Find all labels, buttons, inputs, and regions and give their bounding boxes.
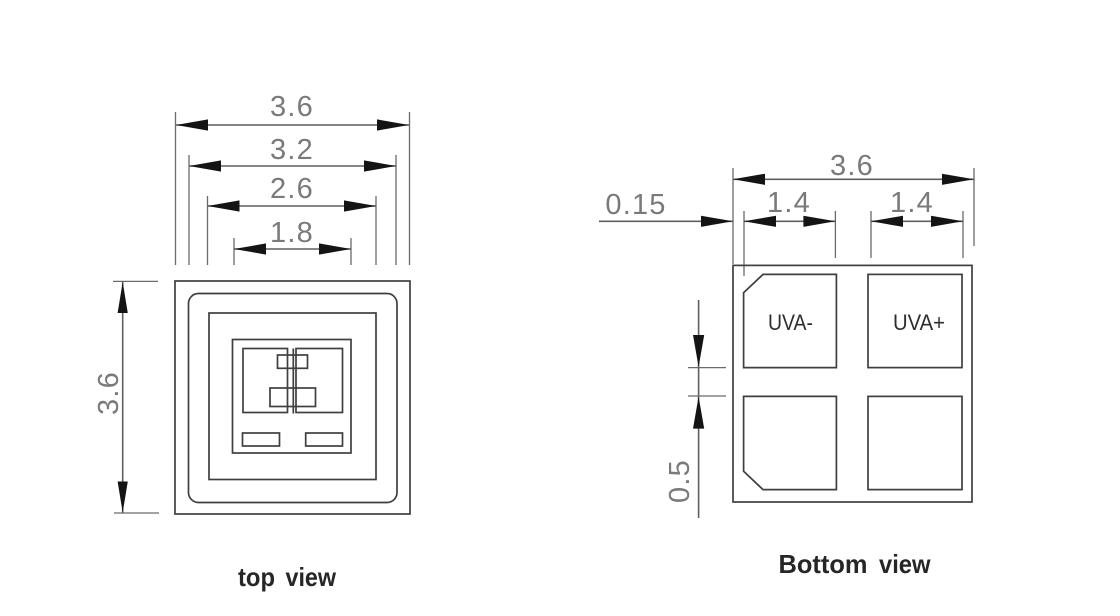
svg-text:Bottom: Bottom [779,549,868,579]
svg-text:top: top [238,562,275,592]
svg-text:1.8: 1.8 [270,217,314,249]
svg-text:0.15: 0.15 [605,189,666,221]
svg-text:UVA+: UVA+ [893,310,945,335]
svg-text:2.6: 2.6 [270,173,314,205]
svg-text:view: view [879,549,931,579]
svg-text:3.6: 3.6 [270,91,314,123]
svg-text:3.6: 3.6 [830,150,874,182]
svg-text:3.6: 3.6 [93,371,125,415]
svg-text:1.4: 1.4 [890,187,934,219]
svg-text:1.4: 1.4 [767,187,811,219]
svg-text:0.5: 0.5 [664,459,696,503]
svg-text:3.2: 3.2 [270,134,314,166]
svg-text:UVA-: UVA- [768,310,813,335]
svg-text:view: view [286,562,337,592]
